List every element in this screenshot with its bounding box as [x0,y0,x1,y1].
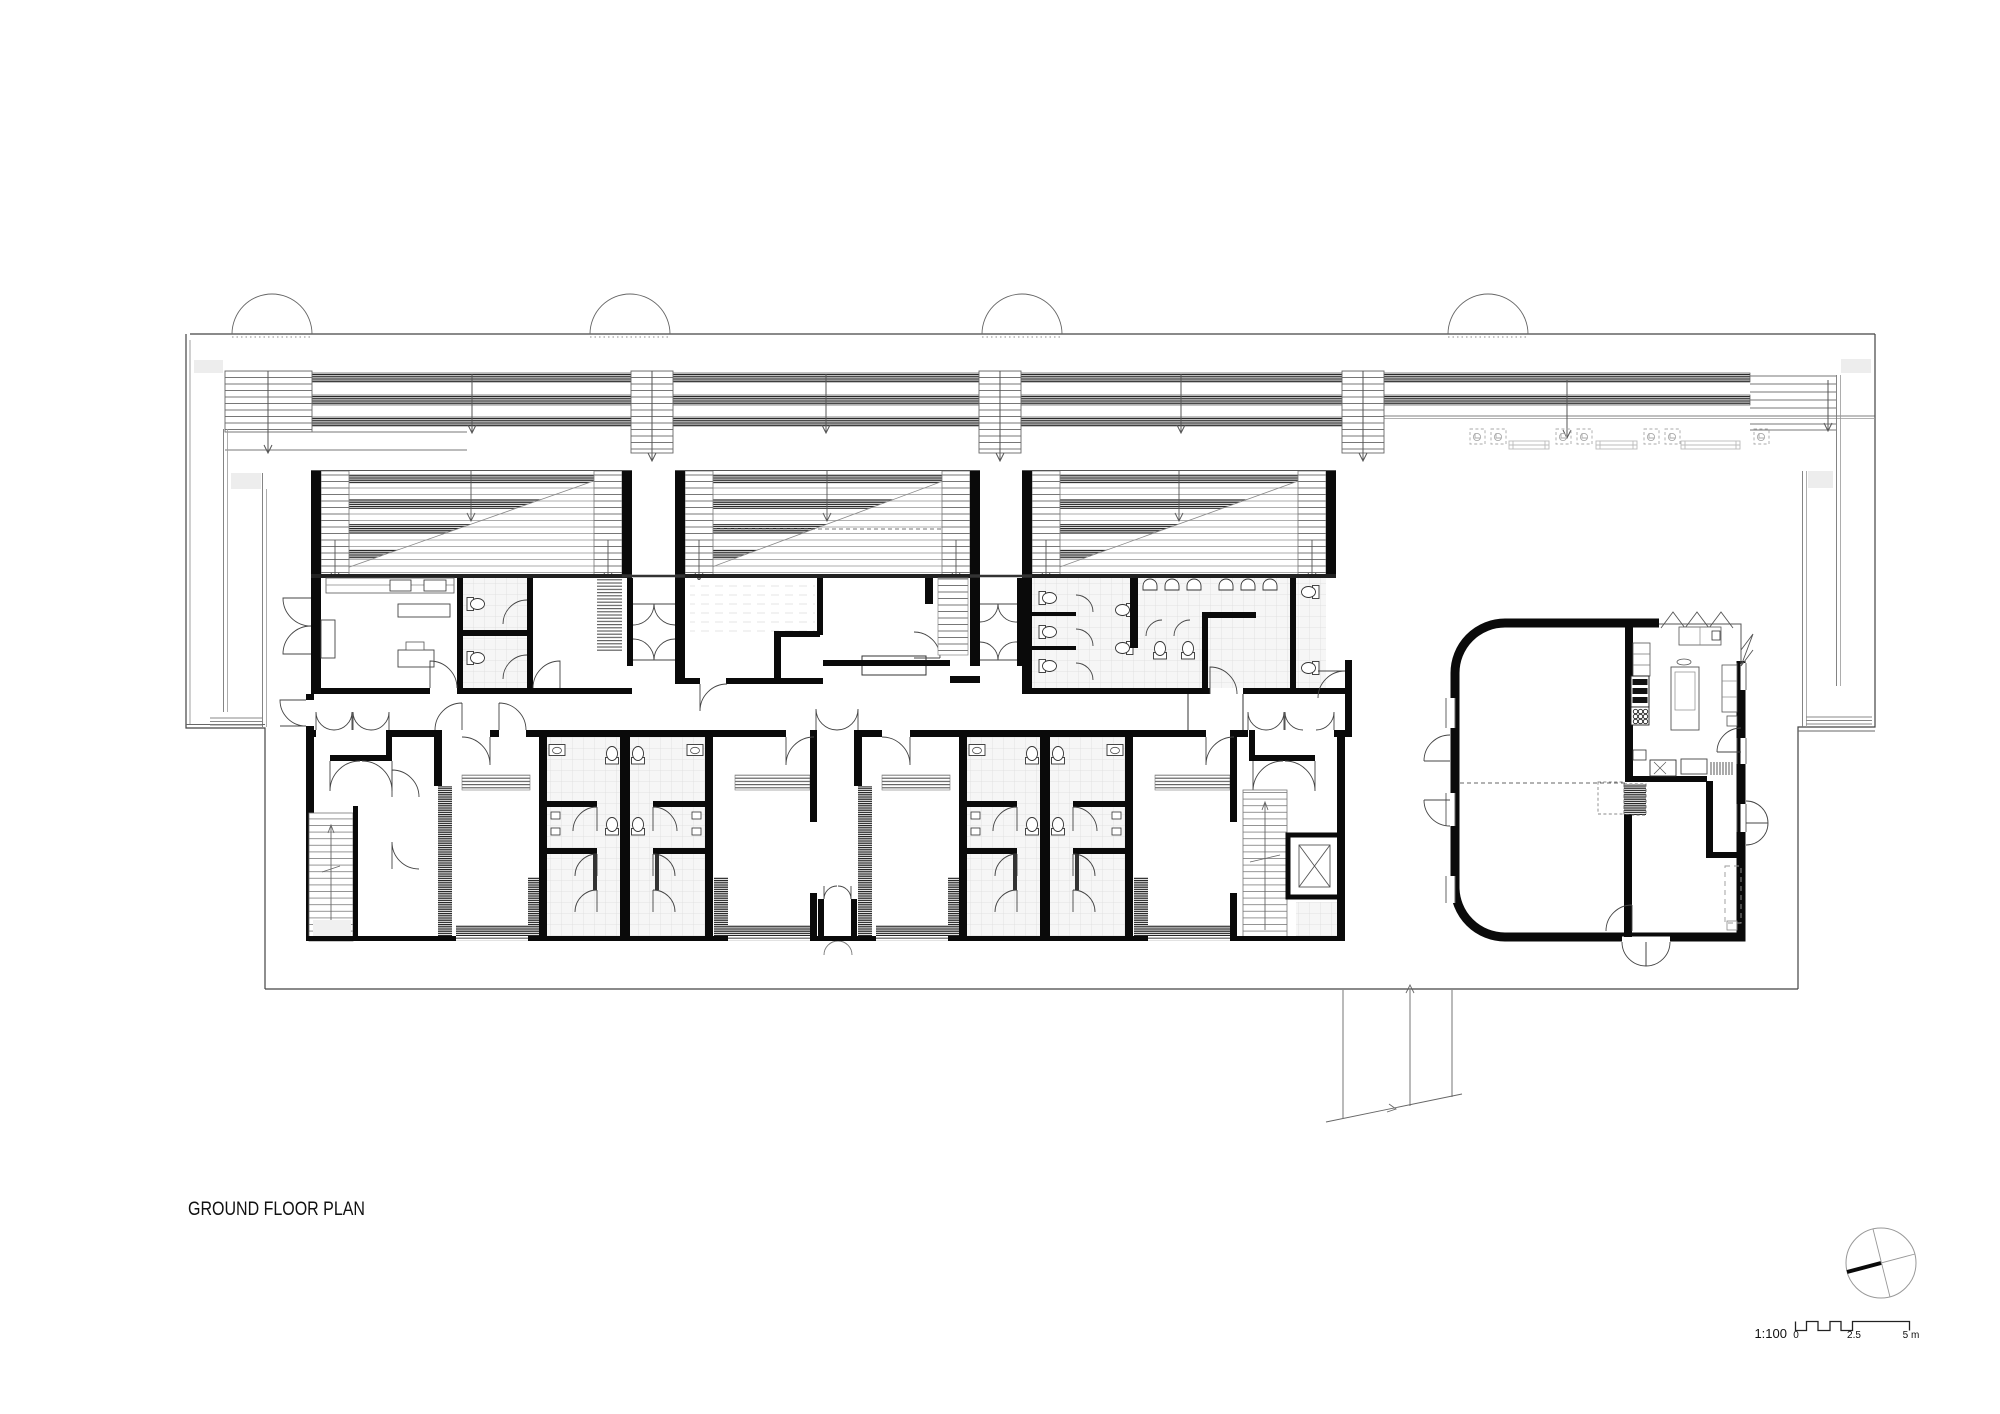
svg-text:5 m: 5 m [1903,1330,1920,1341]
svg-text:2.5: 2.5 [1847,1330,1861,1341]
svg-text:0: 0 [1793,1330,1799,1341]
svg-text:1:100: 1:100 [1754,1326,1787,1341]
svg-text:GROUND FLOOR PLAN: GROUND FLOOR PLAN [188,1198,365,1220]
